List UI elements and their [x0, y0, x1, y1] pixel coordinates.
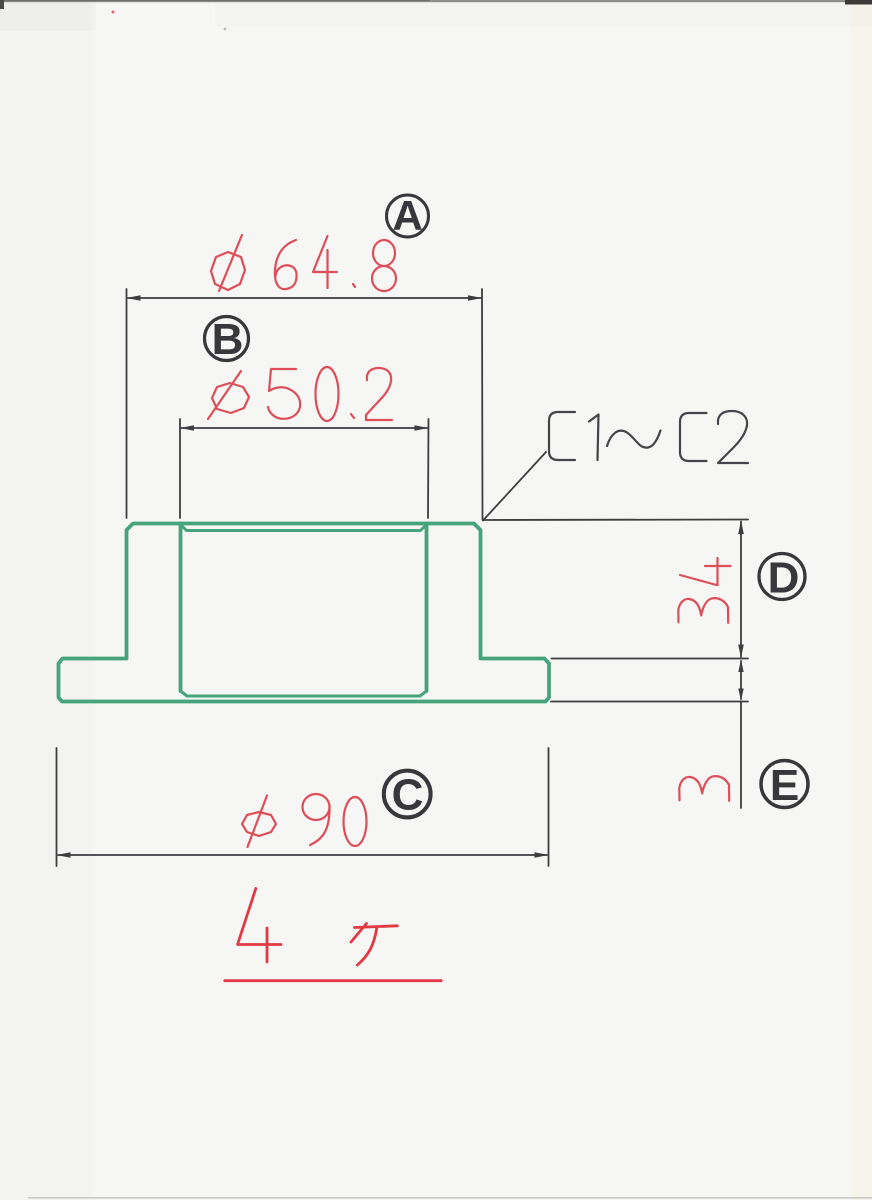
svg-text:B: B: [212, 315, 244, 364]
svg-text:D: D: [768, 554, 800, 603]
svg-text:C: C: [392, 771, 424, 820]
svg-text:E: E: [770, 761, 799, 810]
svg-text:A: A: [393, 192, 423, 239]
